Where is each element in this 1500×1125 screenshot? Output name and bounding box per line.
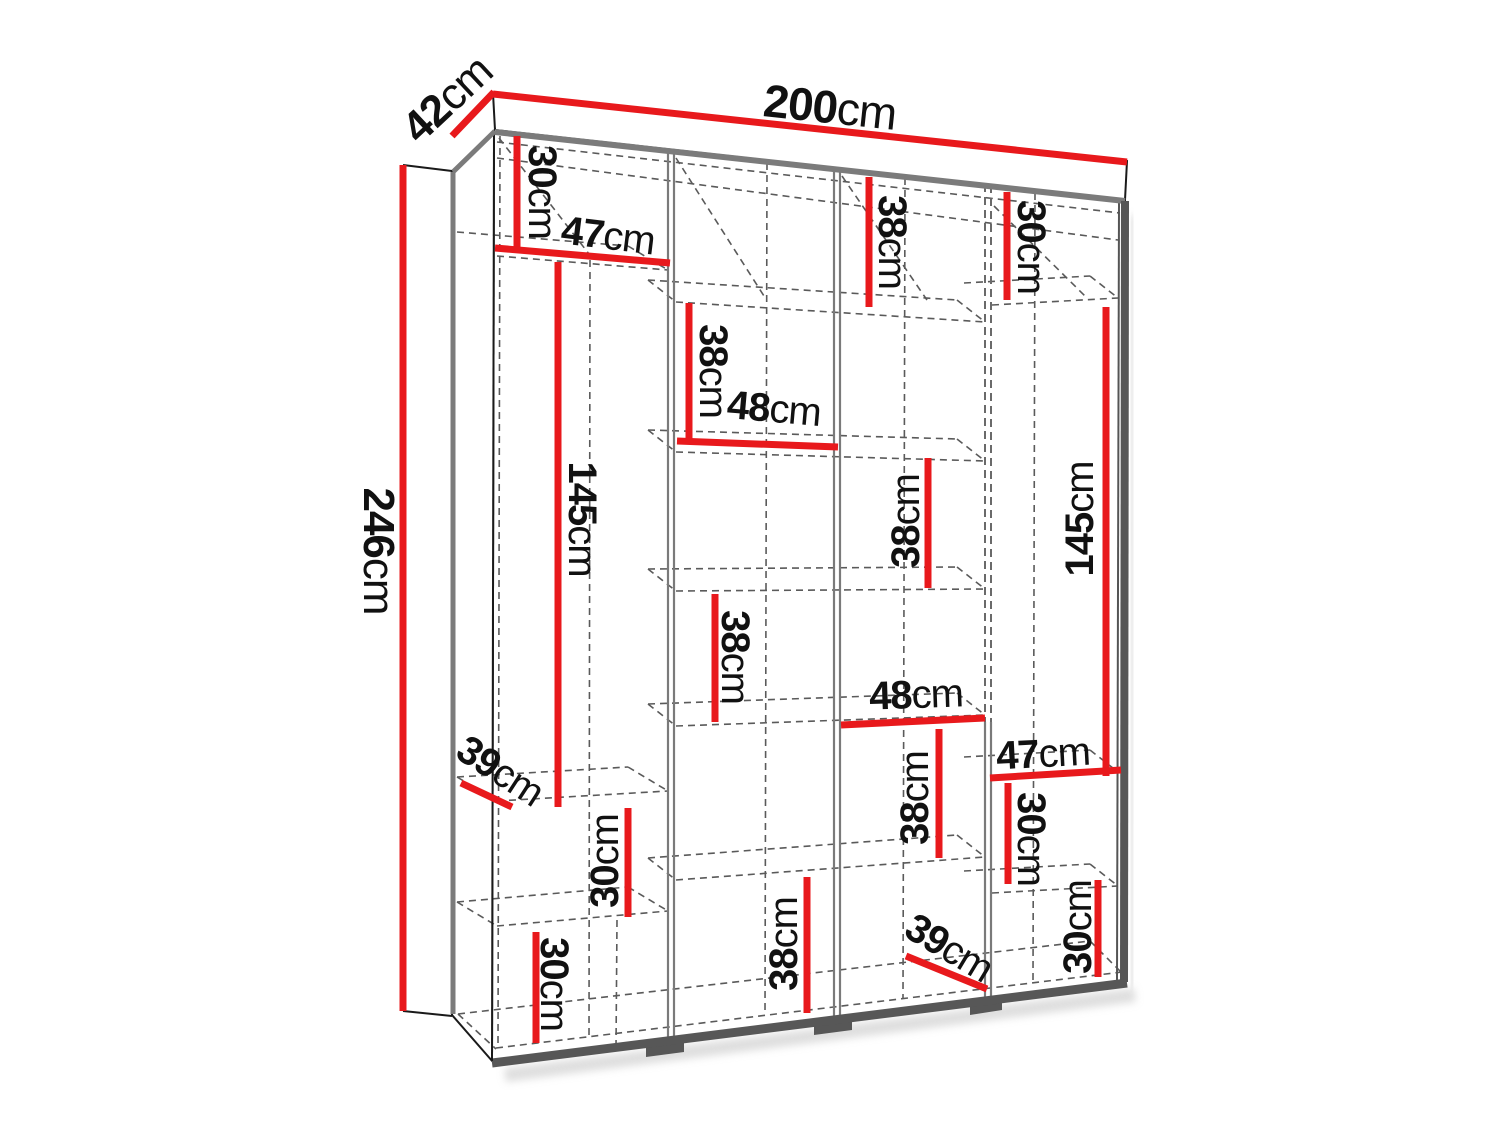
left-top-bevel bbox=[453, 131, 495, 172]
wardrobe-dimension-diagram: 200cm 42cm 246cm 30cm 47cm 38cm 30cm 38c… bbox=[0, 0, 1500, 1125]
dimension-label-col4-width: 47cm bbox=[995, 730, 1091, 779]
dimension-label-col1-hanging-height: 145cm bbox=[560, 461, 604, 576]
dimension-label-col3-top-height: 38cm bbox=[870, 195, 914, 289]
left-side-panel bbox=[452, 130, 495, 1062]
dimension-label-col2-width: 48cm bbox=[725, 383, 822, 435]
dimension-label-col4-hanging-height: 145cm bbox=[1058, 461, 1102, 576]
dimension-label-col3-shelf-height-2: 38cm bbox=[884, 474, 928, 568]
dimension-label-overall-width: 200cm bbox=[761, 74, 899, 140]
dimension-label-overall-height: 246cm bbox=[355, 487, 404, 614]
dimension-label-col1-bottom-height: 30cm bbox=[532, 937, 576, 1031]
height-line-bottom-tick bbox=[403, 1011, 452, 1016]
dimension-label-col4-bottom-height: 30cm bbox=[1056, 880, 1100, 974]
dimension-label-col2-bottom-height: 38cm bbox=[762, 897, 806, 991]
dimension-label-col4-shelf-height-1: 30cm bbox=[1009, 792, 1053, 886]
dimension-label-col3-width: 48cm bbox=[868, 671, 963, 718]
right-edge bbox=[1124, 201, 1125, 982]
dimension-label-col3-shelf-height-3: 38cm bbox=[893, 751, 937, 845]
dimension-label-col2-shelf-height-2: 38cm bbox=[713, 610, 757, 704]
dimension-label-col1-shelf-height-2: 30cm bbox=[583, 814, 627, 908]
diagram-canvas: 200cm 42cm 246cm 30cm 47cm 38cm 30cm 38c… bbox=[0, 0, 1500, 1125]
height-line-top-tick bbox=[403, 165, 452, 171]
dimension-label-col4-top-height: 30cm bbox=[1009, 200, 1053, 294]
dimension-label-col1-top-height: 30cm bbox=[520, 145, 564, 239]
